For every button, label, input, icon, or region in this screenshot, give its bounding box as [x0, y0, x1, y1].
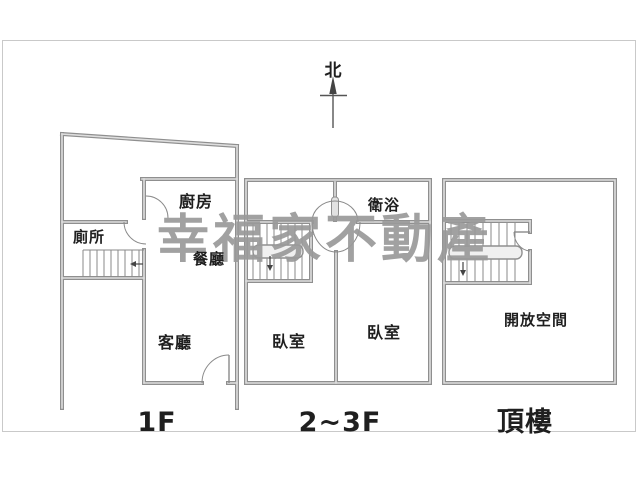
- floor-plan-page: 北 幸福家不動產 廚房 廁所 餐廳 客廳 衛浴 臥室 臥室 開放空間 1F 2~…: [0, 0, 640, 480]
- walls-outline: [62, 134, 615, 408]
- room-label-living: 客廳: [158, 333, 192, 352]
- door-entry-1f: [202, 355, 229, 383]
- stair-direction-arrow-icon: [460, 270, 466, 276]
- floor-label-1f: 1F: [137, 407, 176, 438]
- floor-label-2-3f: 2~3F: [299, 407, 382, 438]
- room-label-bedroom-right: 臥室: [367, 323, 401, 342]
- room-label-bedroom-left: 臥室: [272, 332, 306, 351]
- room-label-dining: 餐廳: [193, 250, 225, 268]
- room-label-toilet: 廁所: [73, 228, 105, 246]
- north-compass: 北: [320, 61, 347, 128]
- stairs-1f: [83, 250, 144, 277]
- door-toilet: [124, 222, 146, 244]
- room-label-open-space: 開放空間: [504, 311, 568, 329]
- stair-direction-arrow-icon: [130, 261, 136, 267]
- floor-label-roof: 頂樓: [497, 407, 553, 438]
- room-label-bathroom: 衛浴: [367, 196, 400, 214]
- floor-plan-svg: 北 幸福家不動產 廚房 廁所 餐廳 客廳 衛浴 臥室 臥室 開放空間 1F 2~…: [0, 0, 640, 480]
- room-label-kitchen: 廚房: [179, 192, 213, 211]
